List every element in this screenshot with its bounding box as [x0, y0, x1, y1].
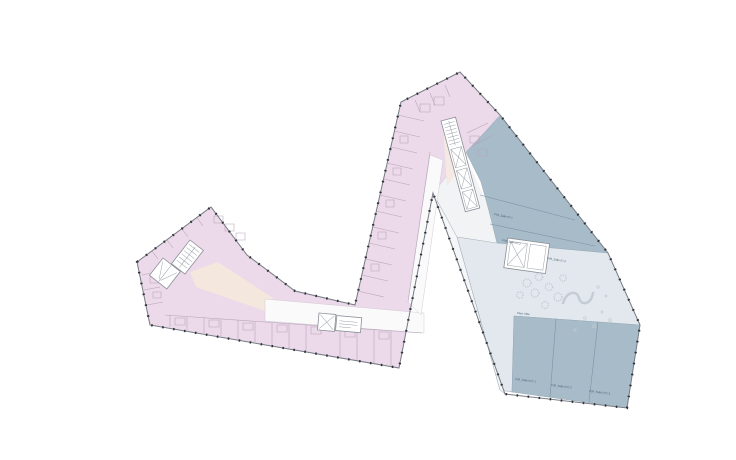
- zone-fills: [137, 72, 640, 408]
- floor-plan-canvas: P09_Salle 07.1 P09_Salle 07.2 P09_Salle …: [0, 0, 736, 460]
- lower-wing-stair-box: [336, 316, 362, 333]
- floor-plan-page: P09_Salle 07.1 P09_Salle 07.2 P09_Salle …: [0, 0, 736, 460]
